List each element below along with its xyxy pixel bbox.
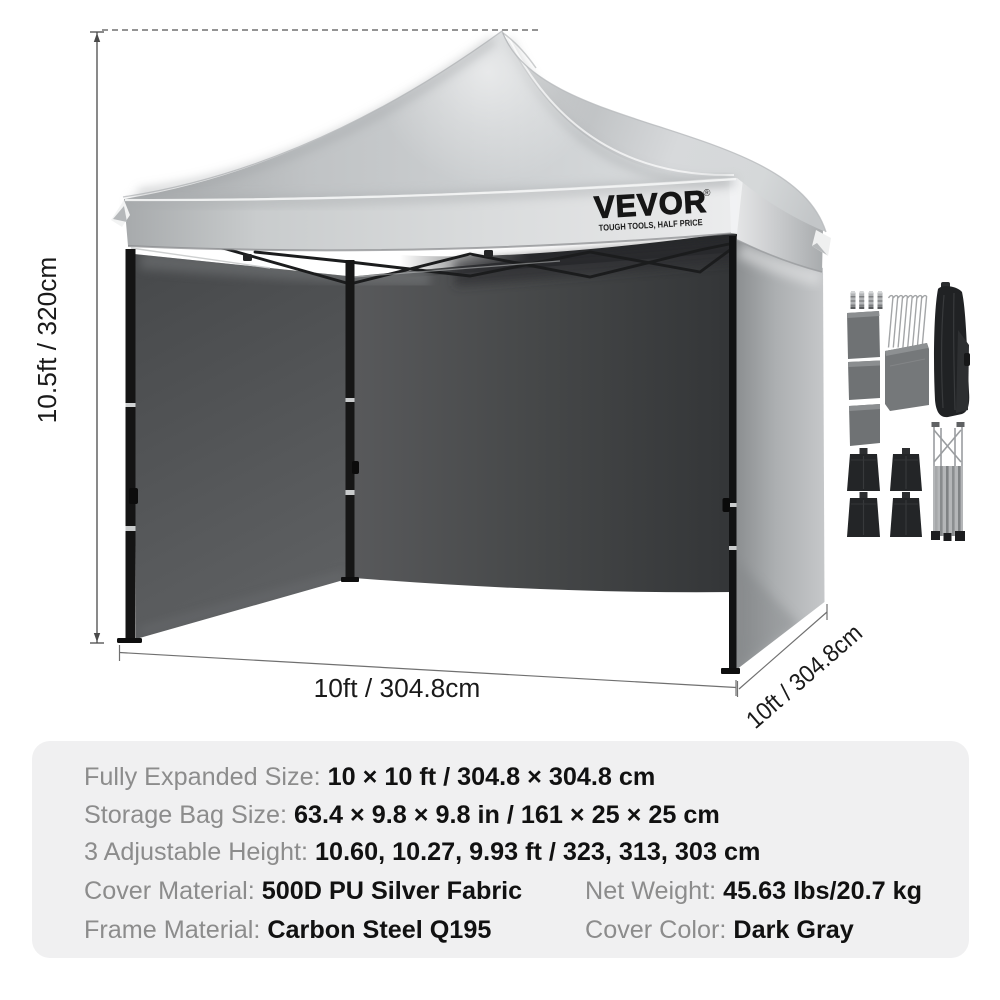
svg-text:Net Weight: 45.63 lbs/20.7 kg: Net Weight: 45.63 lbs/20.7 kg — [585, 877, 922, 905]
svg-text:Cover Color: Dark Gray: Cover Color: Dark Gray — [585, 916, 854, 944]
svg-text:10.5ft / 320cm: 10.5ft / 320cm — [32, 257, 62, 424]
svg-text:10ft / 304.8cm: 10ft / 304.8cm — [314, 673, 481, 703]
svg-text:®: ® — [703, 188, 711, 199]
svg-text:Cover Material: 500D PU Silver: Cover Material: 500D PU Silver Fabric — [84, 877, 522, 905]
svg-text:Fully Expanded Size: 10 × 10 f: Fully Expanded Size: 10 × 10 ft / 304.8 … — [84, 763, 655, 791]
svg-text:3 Adjustable Height: 10.60, 10: 3 Adjustable Height: 10.60, 10.27, 9.93 … — [84, 838, 760, 866]
svg-text:Frame Material: Carbon Steel Q: Frame Material: Carbon Steel Q195 — [84, 916, 491, 944]
svg-text:Storage Bag Size: 63.4 × 9.8 ×: Storage Bag Size: 63.4 × 9.8 × 9.8 in / … — [84, 801, 720, 829]
